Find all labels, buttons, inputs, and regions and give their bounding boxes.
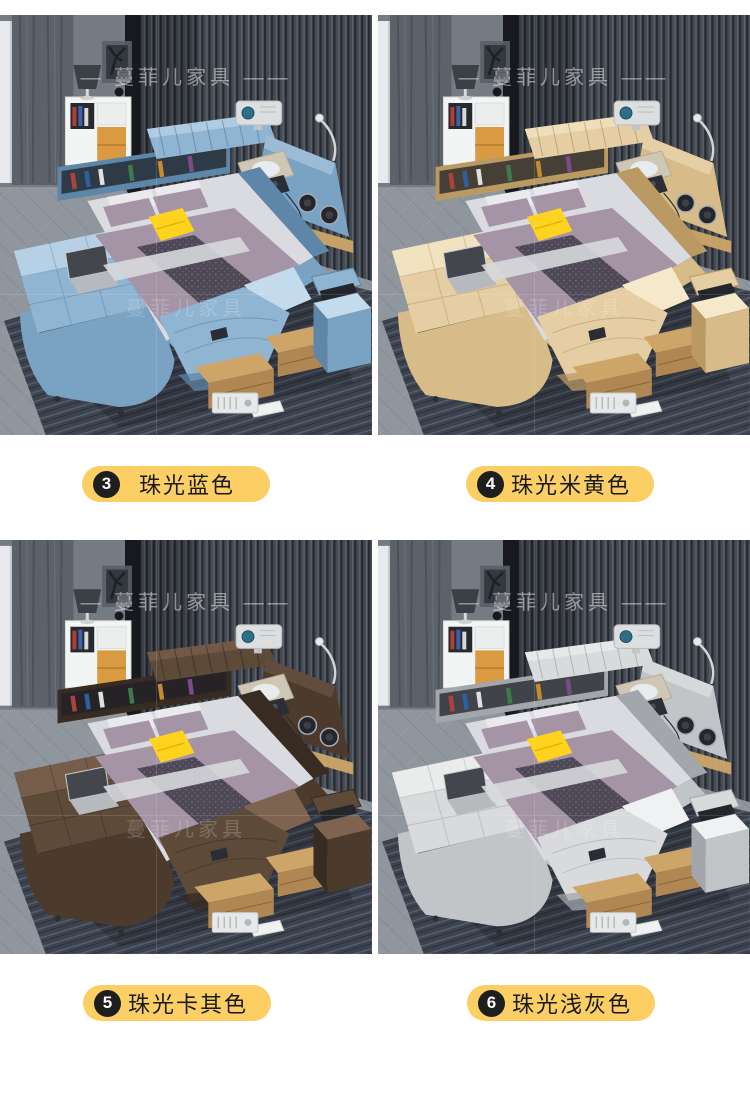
watermark-grid-line	[156, 540, 157, 954]
bedroom-scene-illustration	[378, 540, 750, 954]
bedroom-scene-illustration	[0, 15, 372, 435]
variant-label-pearl-beige: 4 珠光米黄色	[466, 466, 654, 502]
product-photo-pearl-lightgray[interactable]: — 蔓菲儿家具 —— 蔓菲儿家具	[378, 540, 750, 954]
variant-color-name: 珠光卡其色	[121, 987, 265, 1019]
watermark-grid-line	[378, 294, 750, 295]
watermark-grid-line	[0, 294, 372, 295]
label-row-top: 3 珠光蓝色 4 珠光米黄色	[0, 435, 750, 540]
product-photo-pearl-beige[interactable]: — 蔓菲儿家具 —— 蔓菲儿家具	[378, 15, 750, 435]
bedroom-scene-illustration	[378, 15, 750, 435]
watermark-grid-line	[378, 815, 750, 816]
variant-number-badge: 5	[94, 990, 121, 1017]
watermark-grid-line	[156, 15, 157, 435]
variant-color-name: 珠光米黄色	[504, 468, 648, 500]
watermark-grid-line	[534, 15, 535, 435]
watermark-grid-line	[534, 540, 535, 954]
variant-color-name: 珠光浅灰色	[505, 987, 649, 1019]
product-photo-pearl-khaki[interactable]: — 蔓菲儿家具 —— 蔓菲儿家具	[0, 540, 372, 954]
label-row-bottom: 5 珠光卡其色 6 珠光浅灰色	[0, 954, 750, 1100]
variant-label-pearl-lightgray: 6 珠光浅灰色	[467, 985, 655, 1021]
variant-number-badge: 6	[478, 990, 505, 1017]
product-photo-pearl-blue[interactable]: — 蔓菲儿家具 —— 蔓菲儿家具	[0, 15, 372, 435]
bedroom-scene-illustration	[0, 540, 372, 954]
photo-row-bottom: — 蔓菲儿家具 —— 蔓菲儿家具	[0, 540, 750, 954]
variant-number-badge: 3	[93, 471, 120, 498]
watermark-grid-line	[0, 815, 372, 816]
product-color-options-sheet: — 蔓菲儿家具 —— 蔓菲儿家具	[0, 15, 750, 1115]
variant-label-pearl-blue: 3 珠光蓝色	[82, 466, 270, 502]
photo-row-top: — 蔓菲儿家具 —— 蔓菲儿家具	[0, 15, 750, 435]
variant-color-name: 珠光蓝色	[120, 468, 264, 500]
variant-number-badge: 4	[477, 471, 504, 498]
variant-label-pearl-khaki: 5 珠光卡其色	[83, 985, 271, 1021]
